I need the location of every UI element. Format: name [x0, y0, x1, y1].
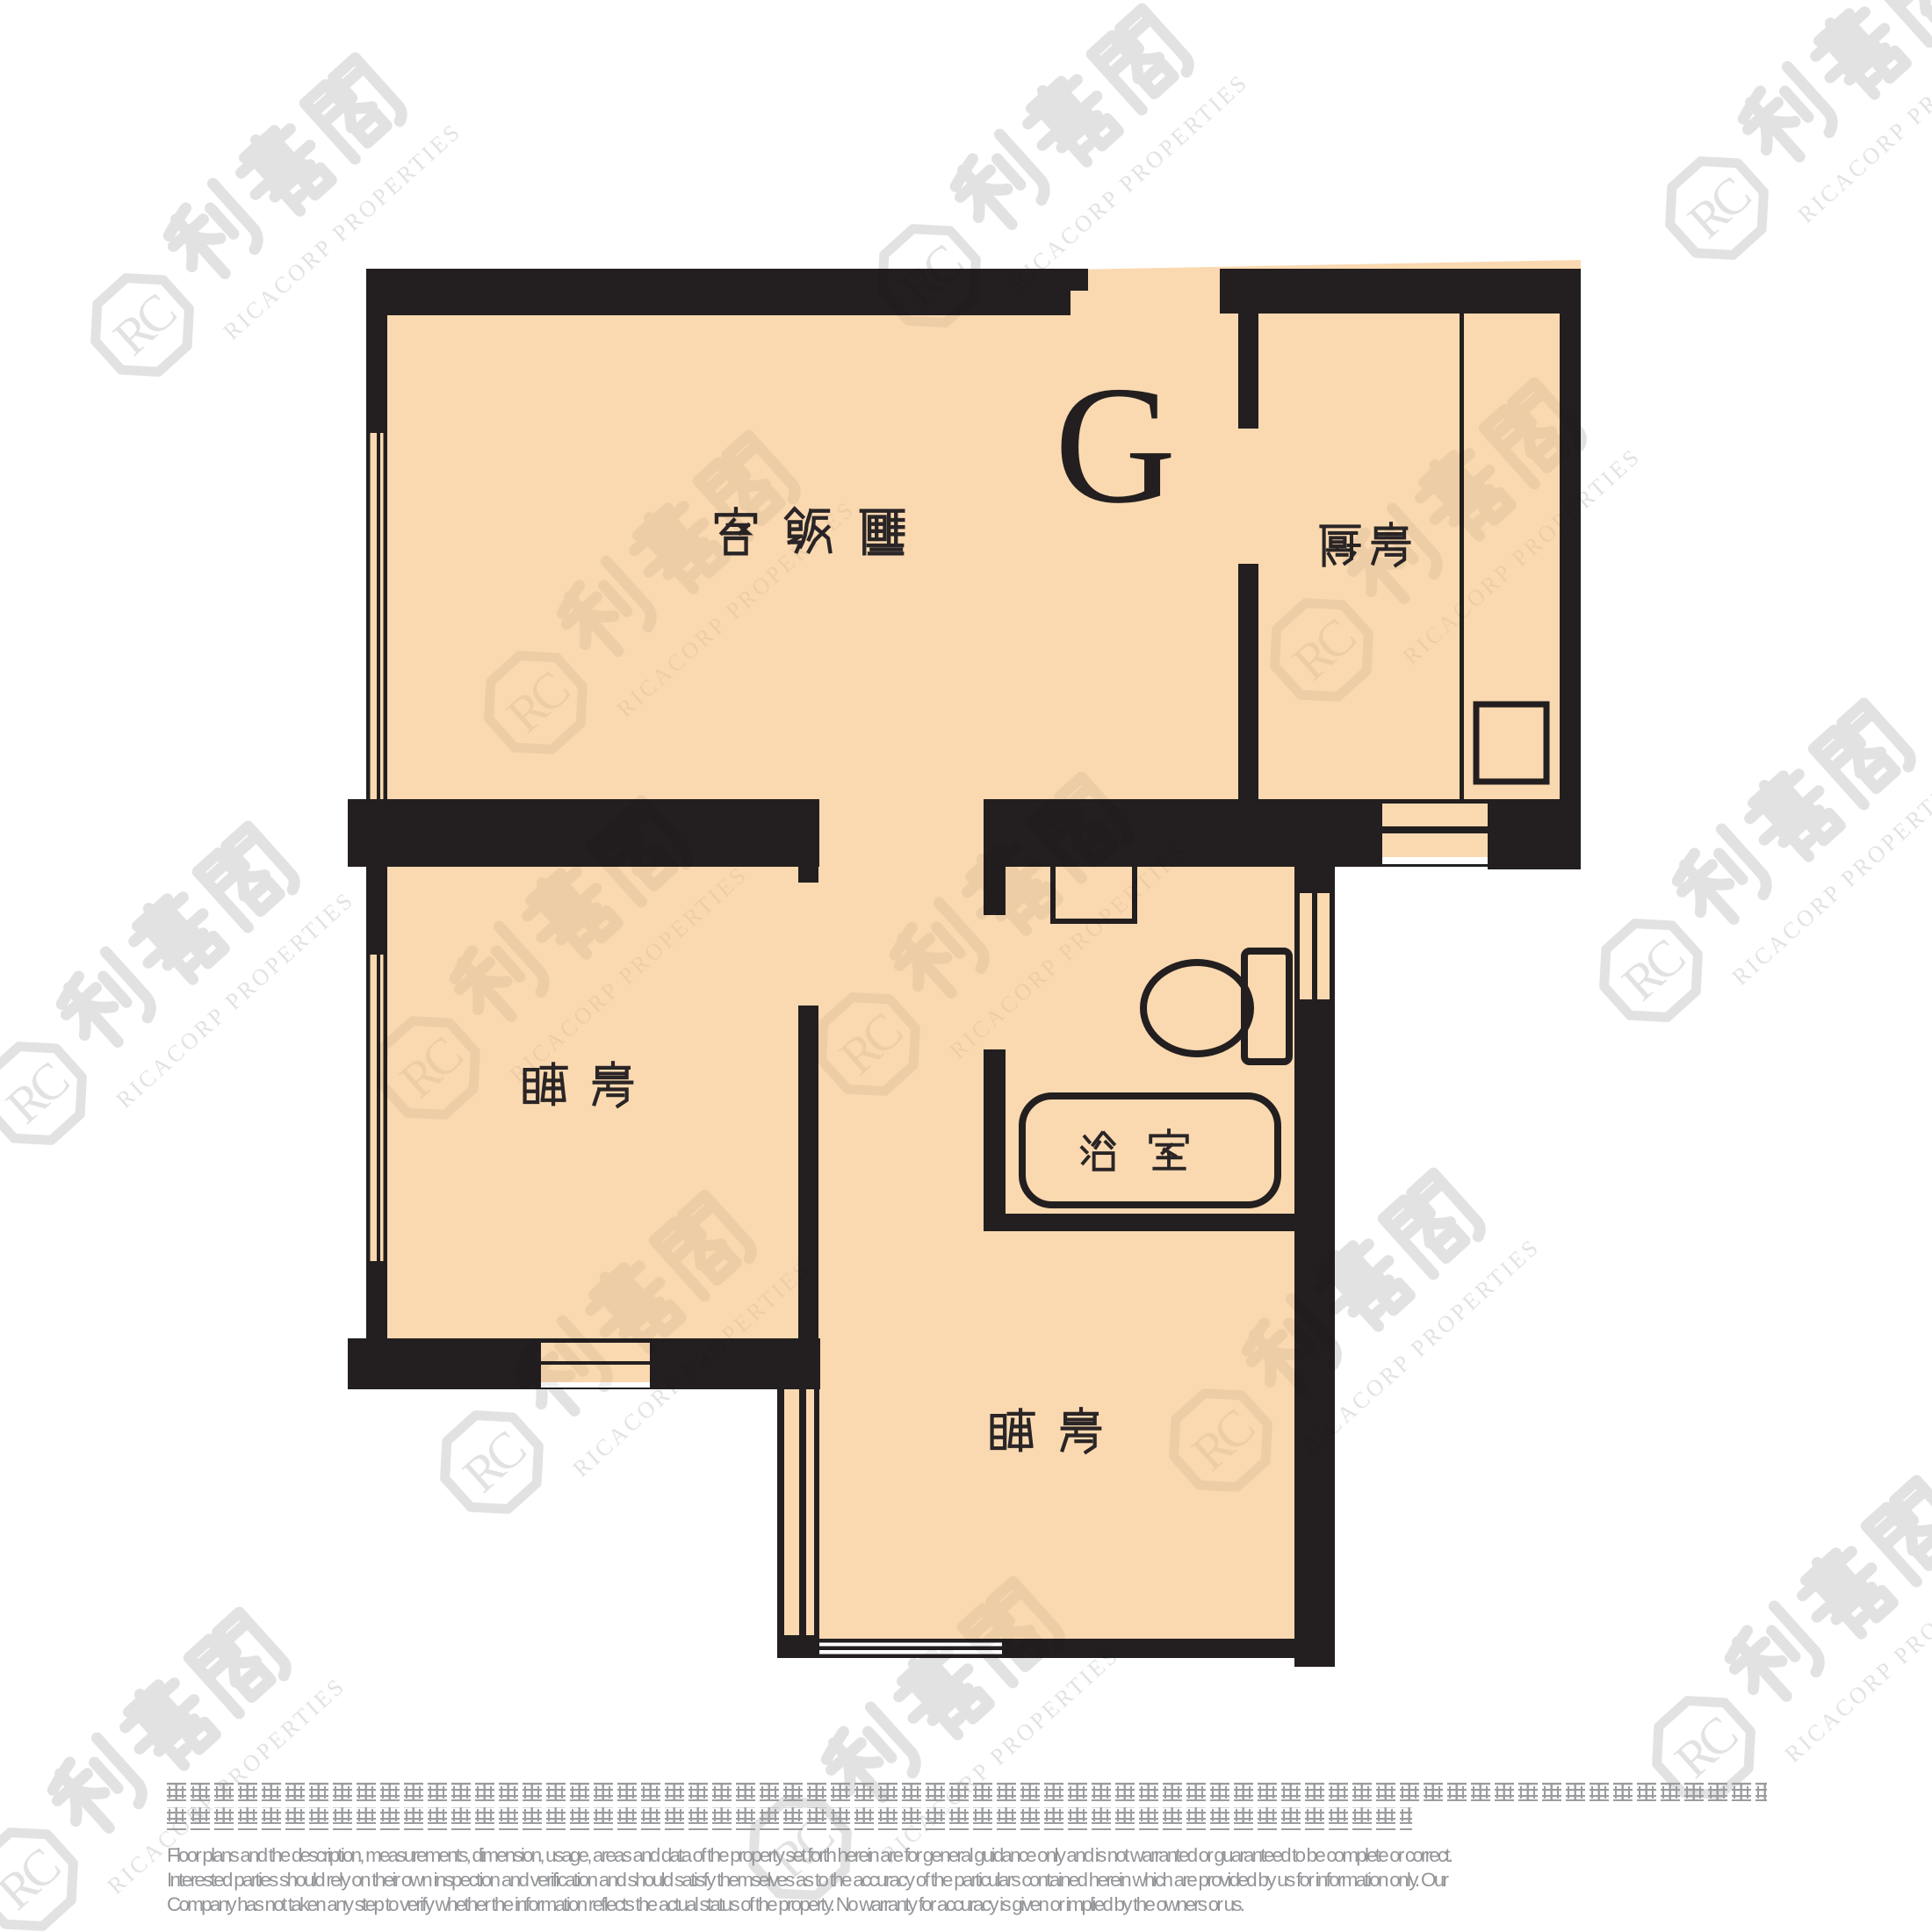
svg-text:G: G: [1055, 351, 1177, 538]
svg-text:Interested parties should rely: Interested parties should rely on their …: [167, 1869, 1449, 1891]
svg-text:Floor plans and the descriptio: Floor plans and the description, measure…: [167, 1844, 1453, 1866]
svg-text:Company has not taken any step: Company has not taken any step to verify…: [167, 1893, 1245, 1915]
